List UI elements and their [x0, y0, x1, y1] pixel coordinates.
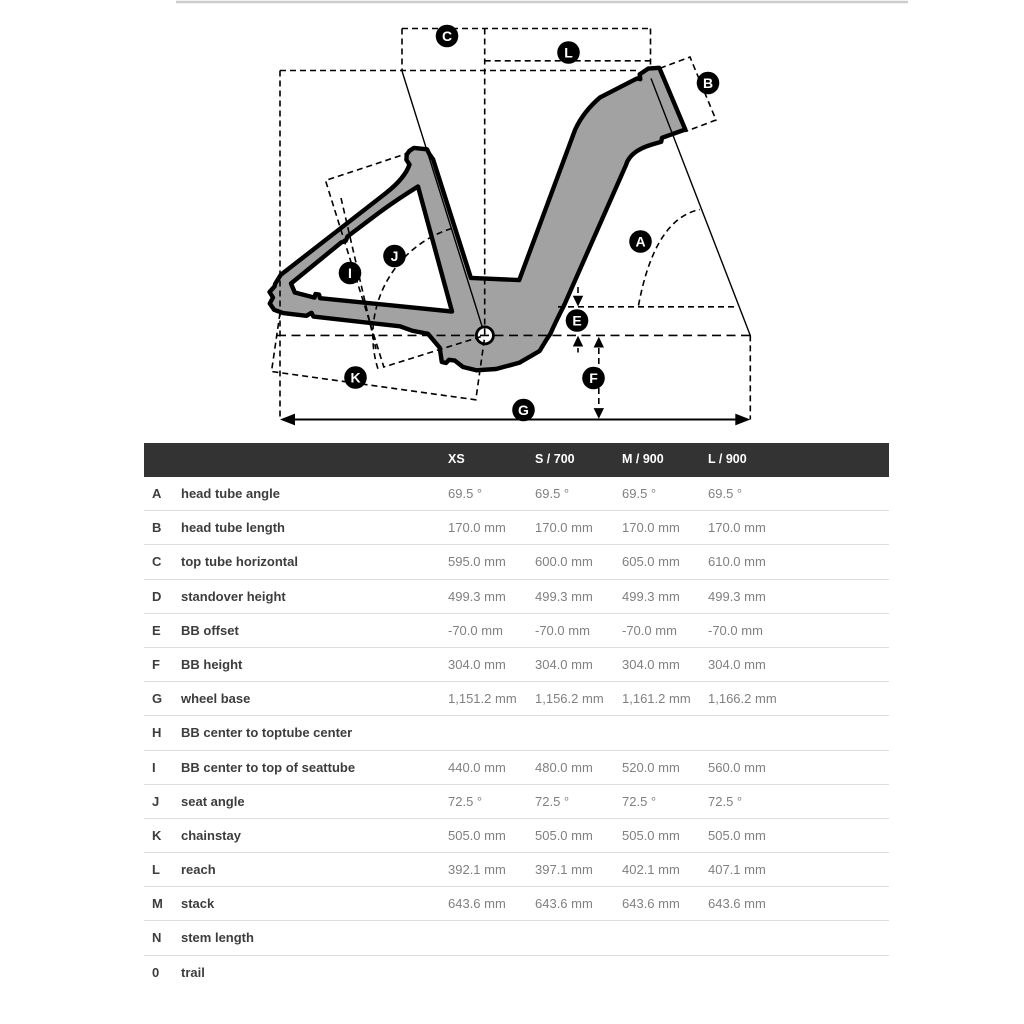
svg-text:G: G: [518, 402, 529, 418]
svg-text:I: I: [348, 265, 352, 281]
svg-text:A: A: [635, 234, 645, 250]
svg-text:J: J: [391, 248, 399, 264]
svg-text:C: C: [442, 28, 452, 44]
svg-text:L: L: [564, 45, 573, 61]
svg-text:E: E: [572, 313, 581, 329]
svg-text:F: F: [589, 370, 598, 386]
svg-text:B: B: [703, 75, 713, 91]
svg-text:K: K: [350, 370, 360, 386]
